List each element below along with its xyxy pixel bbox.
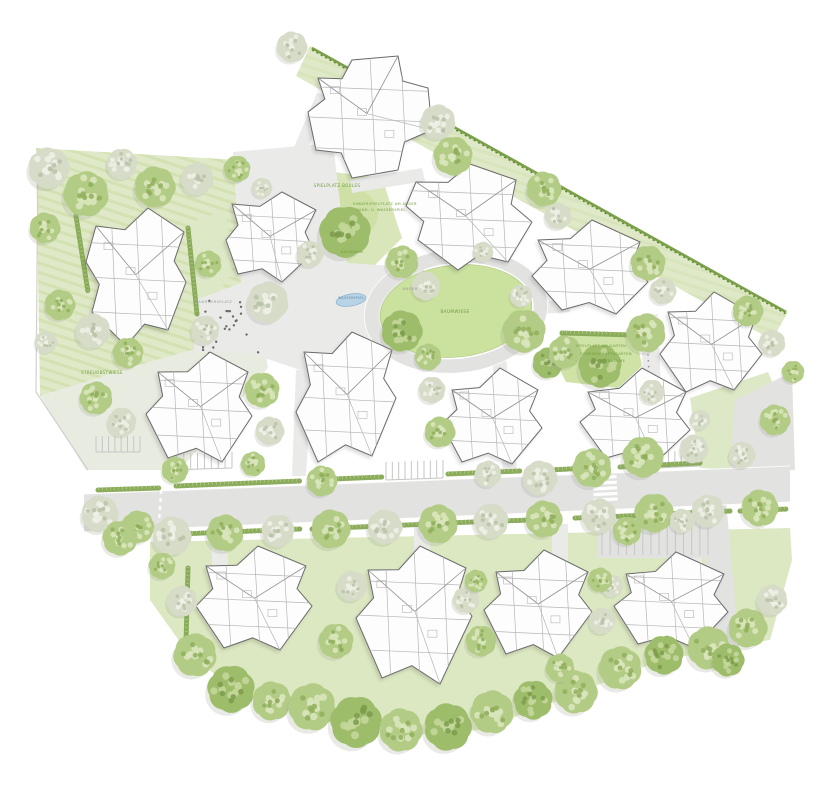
tree-canopy (417, 377, 445, 405)
area-label: SPIELPLATZ AM GARTEN (576, 344, 626, 348)
tree-canopy (648, 278, 676, 307)
area-label: SPIELPLATZ BOULES (314, 183, 361, 188)
area-label: BAUMWIESE (441, 309, 470, 314)
tree-canopy (781, 361, 805, 385)
area-label: GEMEINSCHAFTSGARTEN (580, 352, 632, 356)
area-label: BAUMHAIN (341, 250, 363, 254)
area-label: QUARTIERSPLATZ (196, 300, 233, 304)
tree-canopy (205, 666, 255, 716)
tree-canopy (423, 416, 456, 449)
area-label: STREUOBSTWIESE (81, 370, 123, 375)
area-label: SAND- U. WASSERSPIEL (356, 208, 406, 212)
site-plan-svg: SPIELPLATZ BOULESKINDERSPIELPLATZ AM ANG… (0, 0, 835, 800)
tree-canopy (239, 452, 265, 478)
building-B10 (442, 368, 542, 464)
tree-canopy (275, 31, 308, 64)
tree-canopy (254, 417, 284, 448)
tree-canopy (171, 633, 216, 679)
area-label: WASSERSPIEL (338, 296, 364, 300)
area-label: OBSTBAEUME (597, 359, 626, 363)
area-label: ANGER (402, 286, 417, 291)
area-label: KINDERSPIELPLATZ AM ANGER (353, 202, 417, 206)
site-plan: SPIELPLATZ BOULESKINDERSPIELPLATZ AM ANG… (0, 0, 835, 800)
